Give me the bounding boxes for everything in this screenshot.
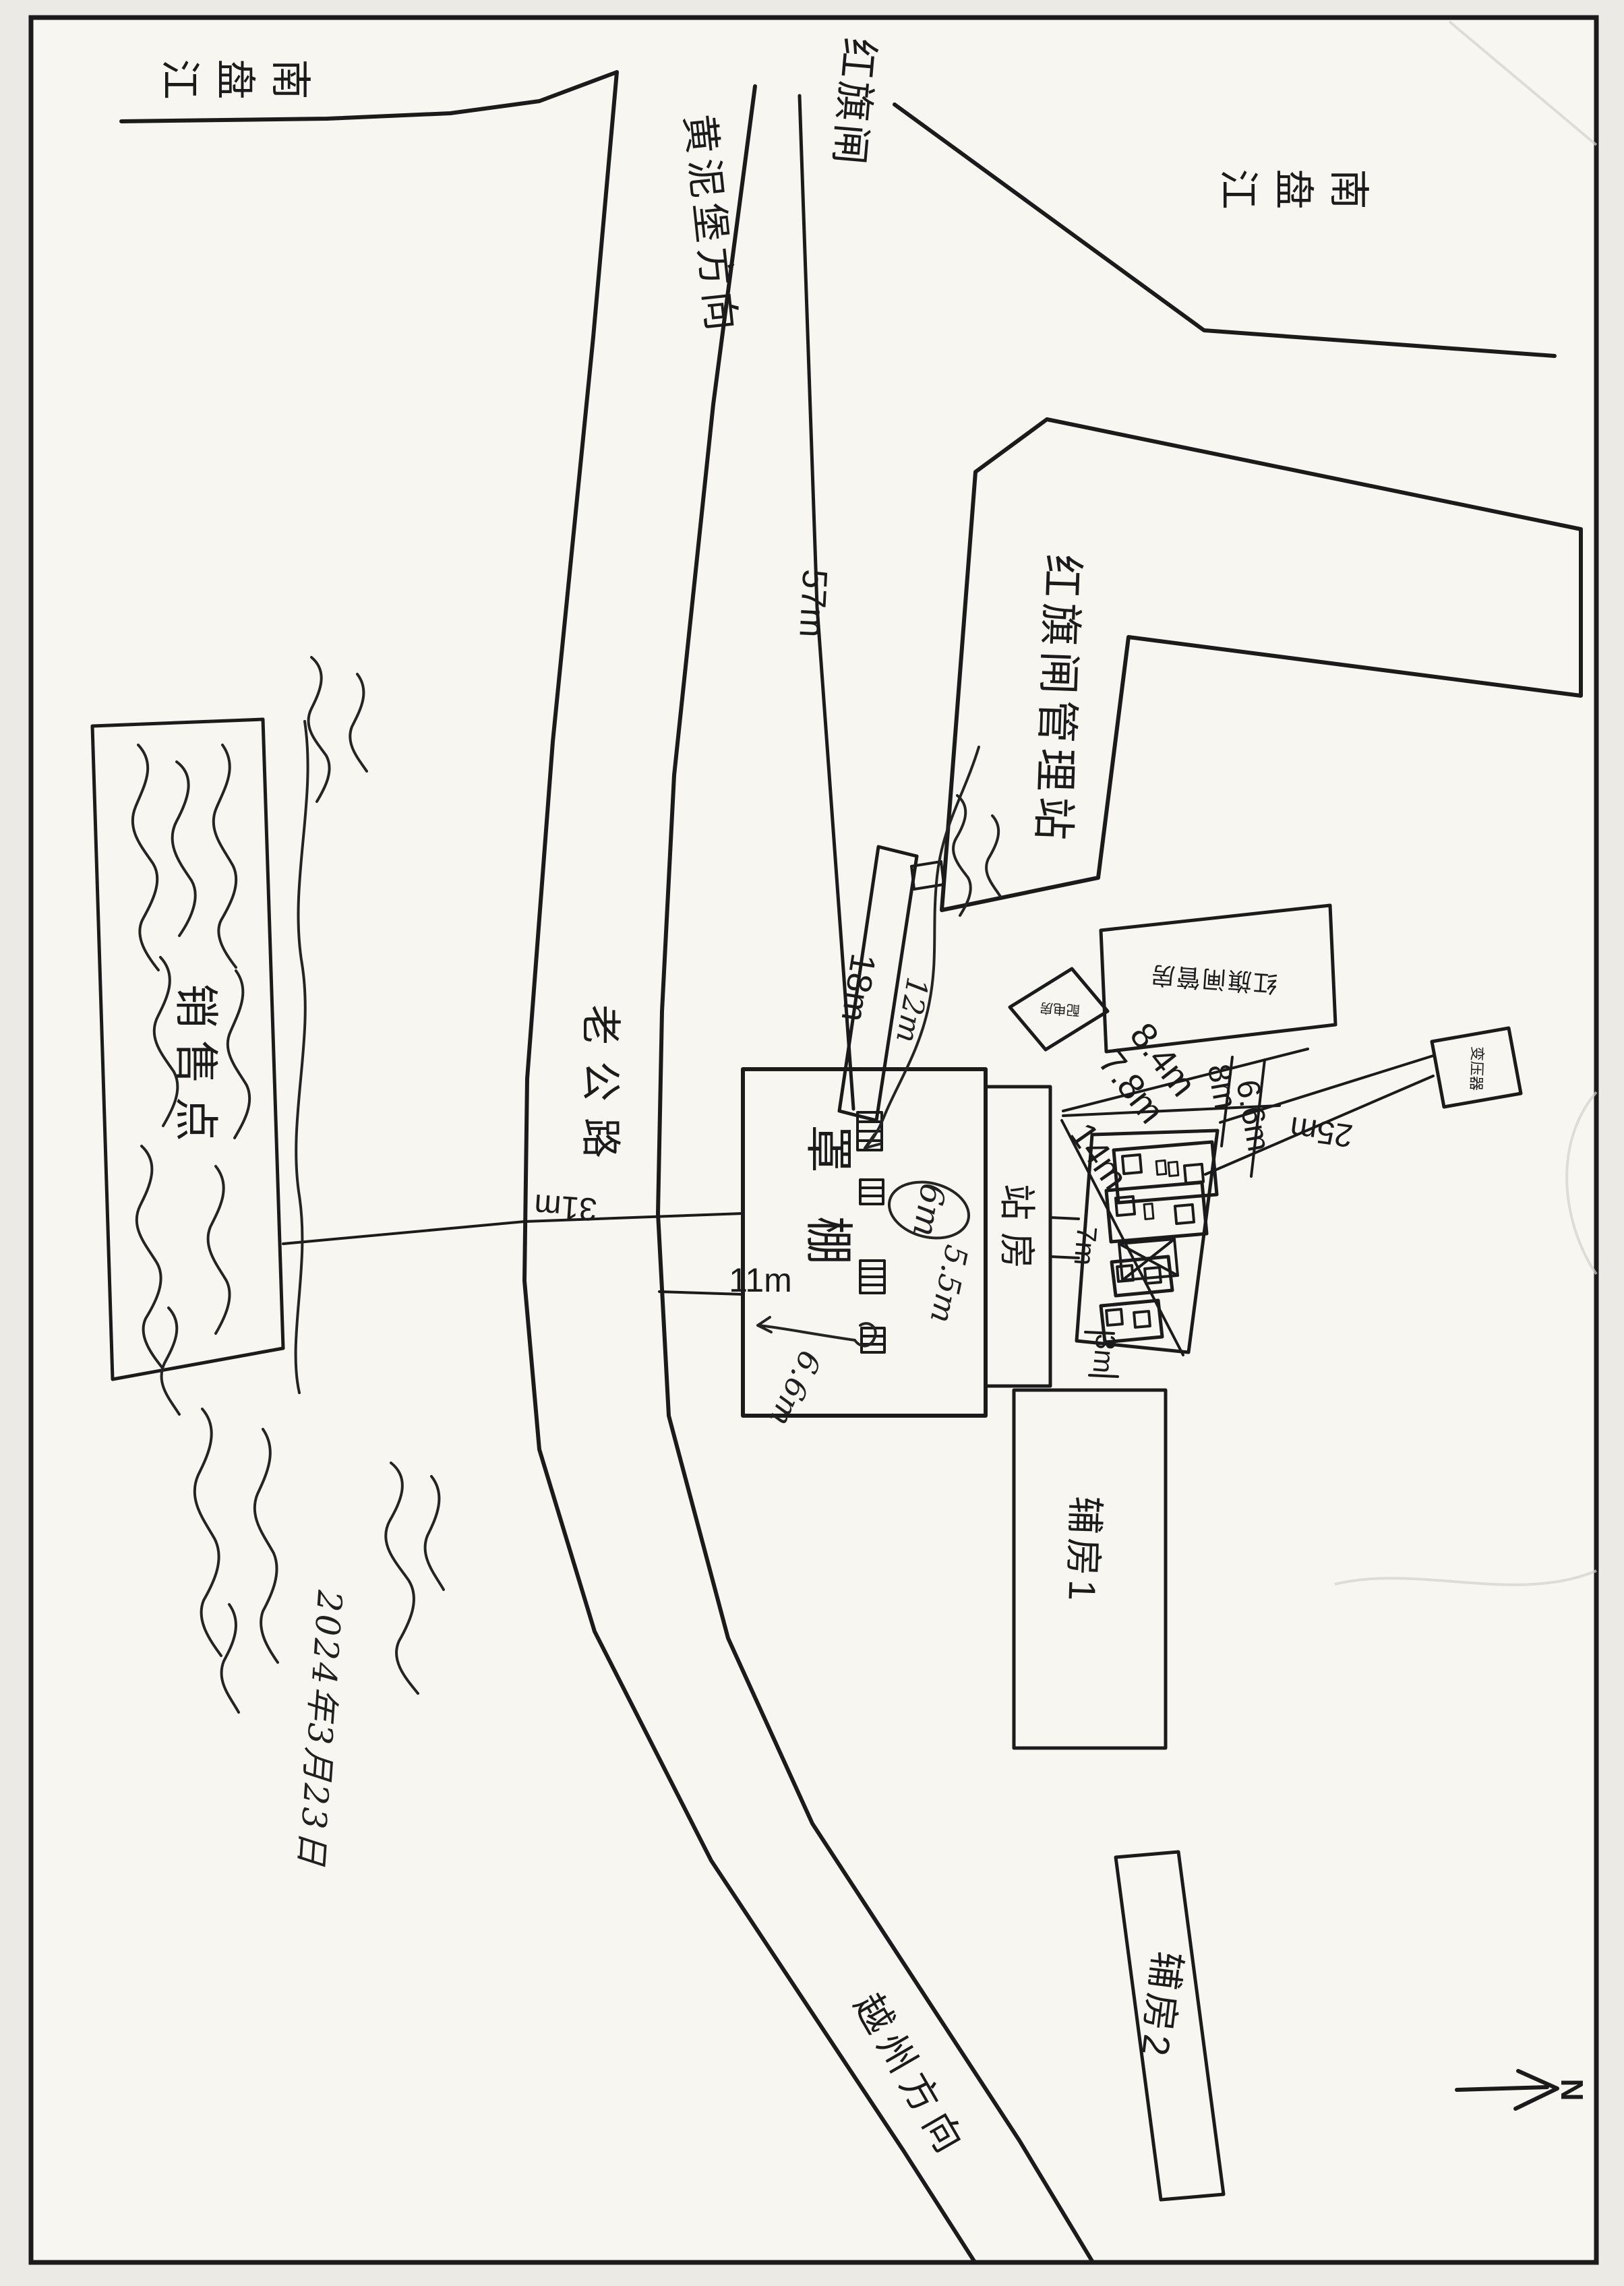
canopy-label: 罩棚 — [804, 1124, 852, 1308]
old-road-label: 老公路 — [580, 1004, 620, 1174]
river-label-top-right: 南盘江 — [1205, 165, 1371, 206]
power-room-label: 配电房 — [1039, 1000, 1080, 1017]
dimension-label-31m: 31m — [533, 1189, 598, 1225]
aux-room-1-label: 辅房1 — [1062, 1495, 1104, 1605]
station-house-label: 站房 — [998, 1184, 1035, 1281]
management-station-label: 红旗闸管理站 — [1031, 553, 1084, 846]
transformer-label: 变压器 — [1468, 1046, 1484, 1091]
dimension-label-11m: 11m — [729, 1263, 792, 1297]
tick-7m — [1050, 1217, 1079, 1219]
dimension-label-25m: 25m — [1288, 1111, 1354, 1152]
dimension-label-7m: 7m — [1070, 1225, 1102, 1267]
handwritten-6m: 6m — [908, 1181, 951, 1240]
scanned-site-plan: 南盘江 南盘江 红旗闸 黄泥堡方向 57m 红旗闸管理站 18m 老公路 31m… — [0, 0, 1624, 2286]
north-label: N — [1557, 2078, 1588, 2101]
dimension-label-3m: 3m — [1089, 1333, 1120, 1375]
sales-point-label: 销售点 — [174, 984, 218, 1153]
dimension-label-57m: 57m — [793, 568, 832, 638]
river-label-top-left: 南盘江 — [146, 55, 312, 96]
tick-3m — [1089, 1375, 1118, 1377]
gate-label: 红旗闸 — [828, 36, 880, 169]
